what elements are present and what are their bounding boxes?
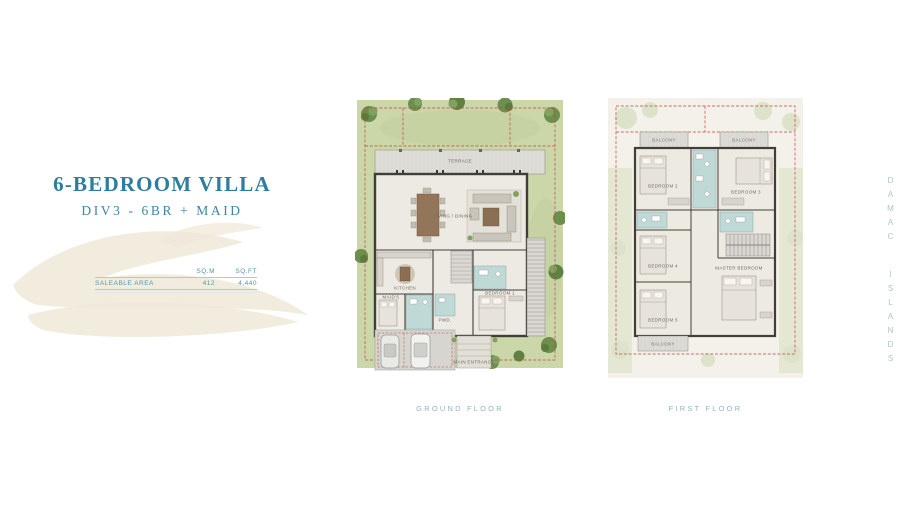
sofa-set — [467, 190, 521, 242]
first-floor-plan: BALCONY BALCONY BEDROOM 2 BEDROOM 3 BEDR… — [608, 98, 803, 383]
tree-icon — [498, 98, 514, 113]
bed — [379, 300, 397, 326]
car — [381, 335, 399, 368]
tree-icon — [549, 265, 564, 280]
saleable-area-sqft: 4,440 — [215, 280, 257, 287]
area-table: SQ.M SQ.FT SALEABLE AREA 412 4,440 — [95, 266, 257, 293]
area-table-header: SQ.M SQ.FT — [95, 266, 257, 278]
balcony — [720, 132, 768, 148]
terrace — [375, 149, 545, 175]
brochure-page: 6-BEDROOM VILLA DIV3 - 6BR + MAID SQ.M S… — [0, 0, 923, 519]
table-row: SALEABLE AREA 412 4,440 — [95, 278, 257, 290]
column-sqm: SQ.M — [173, 268, 215, 275]
stairs — [451, 251, 472, 283]
stairs — [726, 234, 770, 256]
page-subtitle: DIV3 - 6BR + MAID — [52, 203, 272, 219]
entrance-walk — [452, 336, 498, 368]
tree-icon — [544, 107, 560, 123]
plan-caption-ground: GROUND FLOOR — [355, 404, 565, 413]
ground-floor-plan: TERRACE LIVING / DINING KITCHEN MAID'S P… — [355, 98, 565, 383]
car — [411, 334, 430, 368]
bed — [640, 290, 666, 328]
table-underline — [95, 290, 257, 293]
ground-floor-drawing — [355, 98, 565, 378]
column-sqft: SQ.FT — [215, 268, 257, 275]
title-block: 6-BEDROOM VILLA DIV3 - 6BR + MAID — [52, 172, 272, 219]
first-floor-drawing — [608, 98, 803, 378]
bed — [640, 236, 666, 274]
side-path-steps — [527, 238, 545, 336]
brand-vertical-text: DAMAC ISLANDS — [886, 176, 895, 376]
plan-caption-first: FIRST FLOOR — [608, 404, 803, 413]
tree-icon — [541, 337, 557, 353]
page-title: 6-BEDROOM VILLA — [52, 172, 272, 197]
balcony — [640, 132, 688, 148]
balcony — [638, 336, 688, 351]
saleable-area-sqm: 412 — [173, 280, 215, 287]
saleable-area-label: SALEABLE AREA — [95, 280, 173, 287]
